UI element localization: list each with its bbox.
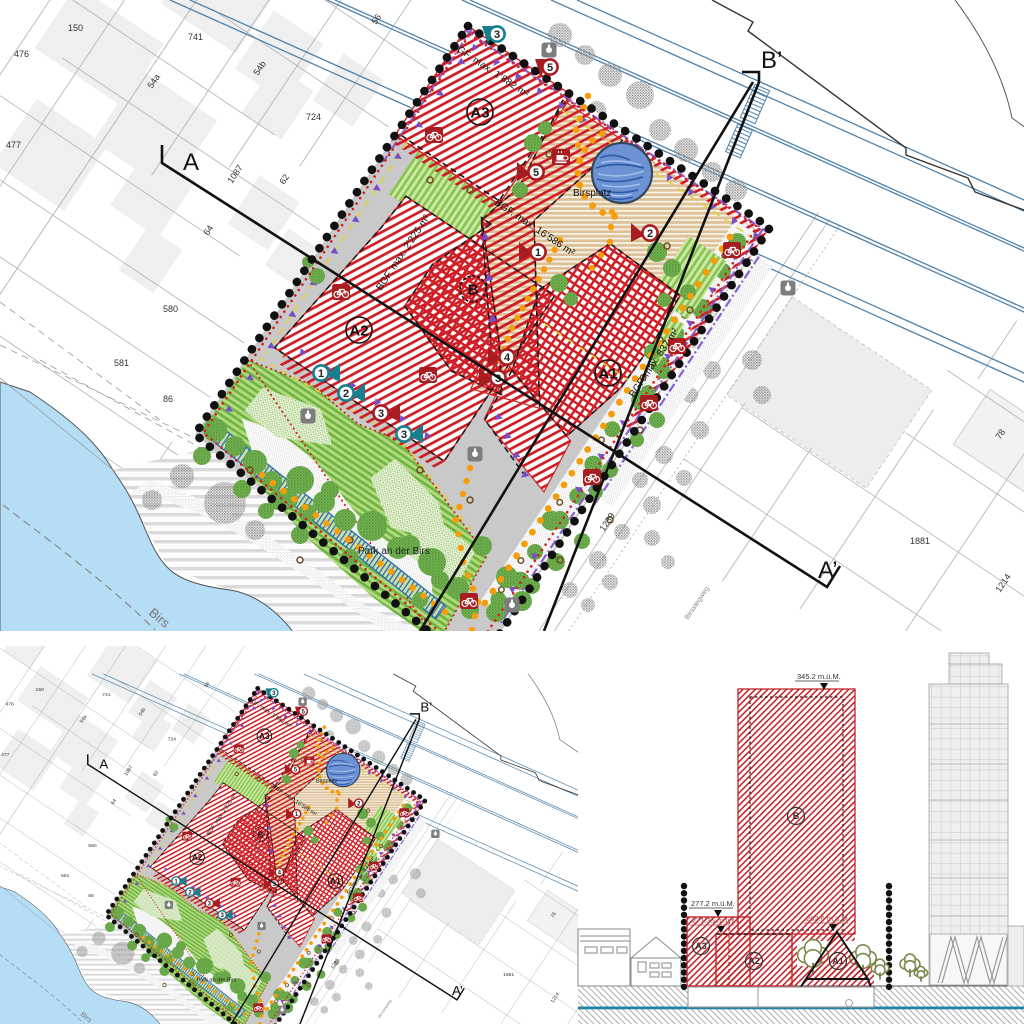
svg-text:477: 477 bbox=[6, 140, 21, 150]
svg-text:277.2 m.ü.M.: 277.2 m.ü.M. bbox=[691, 899, 735, 908]
svg-text:A’: A’ bbox=[818, 557, 838, 584]
svg-text:86: 86 bbox=[163, 394, 173, 404]
svg-text:Birsplatz: Birsplatz bbox=[573, 188, 611, 199]
svg-text:A1: A1 bbox=[598, 365, 617, 382]
svg-text:580: 580 bbox=[163, 304, 178, 314]
svg-text:3: 3 bbox=[378, 408, 384, 420]
svg-text:262.6 m.ü.M.: 262.6 m.ü.M. bbox=[806, 914, 850, 923]
svg-text:A2: A2 bbox=[349, 322, 368, 339]
svg-text:3: 3 bbox=[401, 429, 407, 441]
svg-text:150: 150 bbox=[68, 23, 83, 33]
svg-text:B’: B’ bbox=[761, 47, 782, 74]
svg-text:A3: A3 bbox=[695, 941, 707, 951]
svg-text:1: 1 bbox=[318, 368, 324, 380]
svg-text:A: A bbox=[183, 149, 199, 176]
svg-text:271.35 m.ü.M.: 271.35 m.ü.M. bbox=[692, 916, 740, 925]
svg-text:A3: A3 bbox=[470, 104, 489, 121]
svg-text:B: B bbox=[468, 281, 479, 298]
svg-text:741: 741 bbox=[188, 32, 203, 42]
svg-text:1881: 1881 bbox=[910, 536, 930, 546]
svg-text:A1: A1 bbox=[832, 956, 844, 966]
svg-text:345.2 m.ü.M.: 345.2 m.ü.M. bbox=[797, 672, 841, 681]
svg-text:5: 5 bbox=[547, 62, 553, 74]
svg-text:581: 581 bbox=[114, 358, 129, 368]
svg-text:476: 476 bbox=[14, 49, 29, 59]
svg-text:B: B bbox=[793, 811, 800, 821]
svg-text:1: 1 bbox=[535, 247, 541, 259]
svg-text:724: 724 bbox=[306, 112, 321, 122]
svg-text:5: 5 bbox=[533, 167, 539, 179]
svg-text:Park an der Birs: Park an der Birs bbox=[358, 546, 430, 557]
svg-text:2: 2 bbox=[647, 228, 653, 240]
svg-text:3: 3 bbox=[494, 29, 500, 41]
svg-text:A2: A2 bbox=[748, 956, 760, 966]
svg-text:4: 4 bbox=[504, 352, 511, 364]
svg-text:2: 2 bbox=[343, 388, 349, 400]
